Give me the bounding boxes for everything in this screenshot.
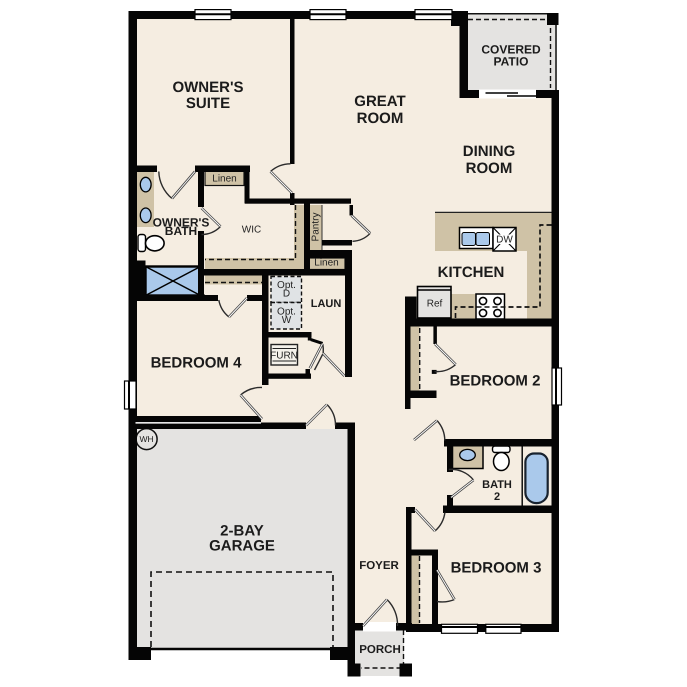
svg-text:PATIO: PATIO — [494, 55, 529, 69]
svg-text:Ref: Ref — [427, 299, 443, 310]
svg-text:BEDROOM 3: BEDROOM 3 — [451, 559, 542, 576]
svg-text:LAUN: LAUN — [311, 298, 342, 310]
svg-text:FURN: FURN — [270, 351, 298, 362]
svg-text:WH: WH — [140, 434, 154, 444]
svg-text:BATH: BATH — [482, 479, 512, 491]
svg-text:WIC: WIC — [242, 225, 261, 236]
svg-text:BEDROOM 4: BEDROOM 4 — [151, 354, 243, 371]
svg-text:GARAGE: GARAGE — [209, 537, 275, 554]
svg-text:BEDROOM 2: BEDROOM 2 — [450, 372, 541, 389]
svg-text:OWNER'S: OWNER'S — [172, 79, 243, 96]
svg-text:Pantry: Pantry — [311, 213, 322, 242]
svg-text:SUITE: SUITE — [186, 95, 230, 112]
svg-text:Linen: Linen — [212, 174, 236, 185]
svg-text:Linen: Linen — [314, 258, 338, 269]
svg-text:W: W — [282, 315, 292, 326]
svg-text:2: 2 — [494, 491, 500, 503]
svg-text:BATH: BATH — [165, 224, 197, 238]
svg-text:FOYER: FOYER — [359, 560, 399, 572]
svg-text:D: D — [283, 289, 290, 300]
svg-text:DINING: DINING — [463, 143, 516, 160]
svg-text:KITCHEN: KITCHEN — [438, 264, 505, 281]
svg-text:PORCH: PORCH — [359, 644, 401, 656]
svg-text:ROOM: ROOM — [466, 160, 513, 177]
svg-text:DW: DW — [496, 235, 513, 246]
svg-text:ROOM: ROOM — [357, 110, 404, 127]
svg-text:GREAT: GREAT — [354, 93, 405, 110]
